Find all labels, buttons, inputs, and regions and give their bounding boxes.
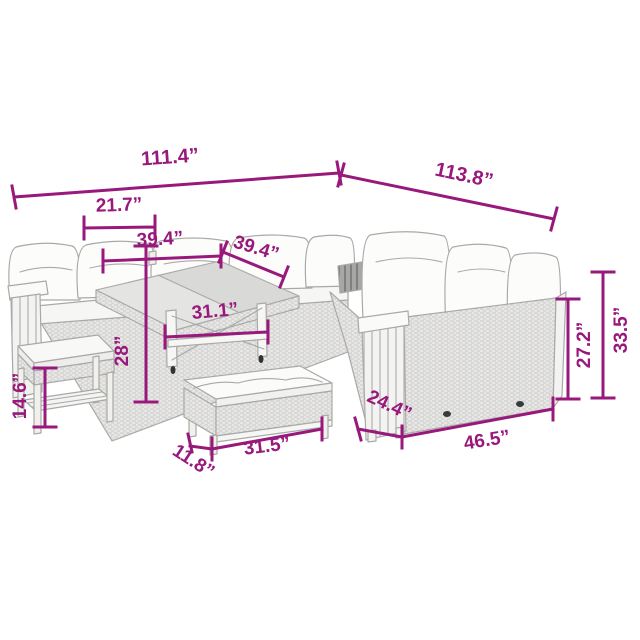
dim-label-overall-width-front: 111.4” (140, 145, 199, 172)
dim-label-seat-back-height: 27.2” (574, 322, 596, 368)
dim-label-table-length: 31.1” (191, 299, 239, 325)
dim-label-total-height: 33.5” (611, 307, 633, 353)
dim-label-left-section-width: 39.4” (136, 228, 184, 252)
dim-label-table-height: 28” (112, 336, 134, 367)
dim-label-back-cushion-width: 21.7” (95, 194, 142, 218)
dimension-diagram: 111.4” 113.8” 21.7” 39.4” 39.4” 31.1” 28… (0, 0, 640, 640)
dim-label-footstool-height: 14.6” (10, 373, 32, 419)
furniture-sketch (0, 0, 640, 640)
right-sofa (330, 232, 566, 442)
